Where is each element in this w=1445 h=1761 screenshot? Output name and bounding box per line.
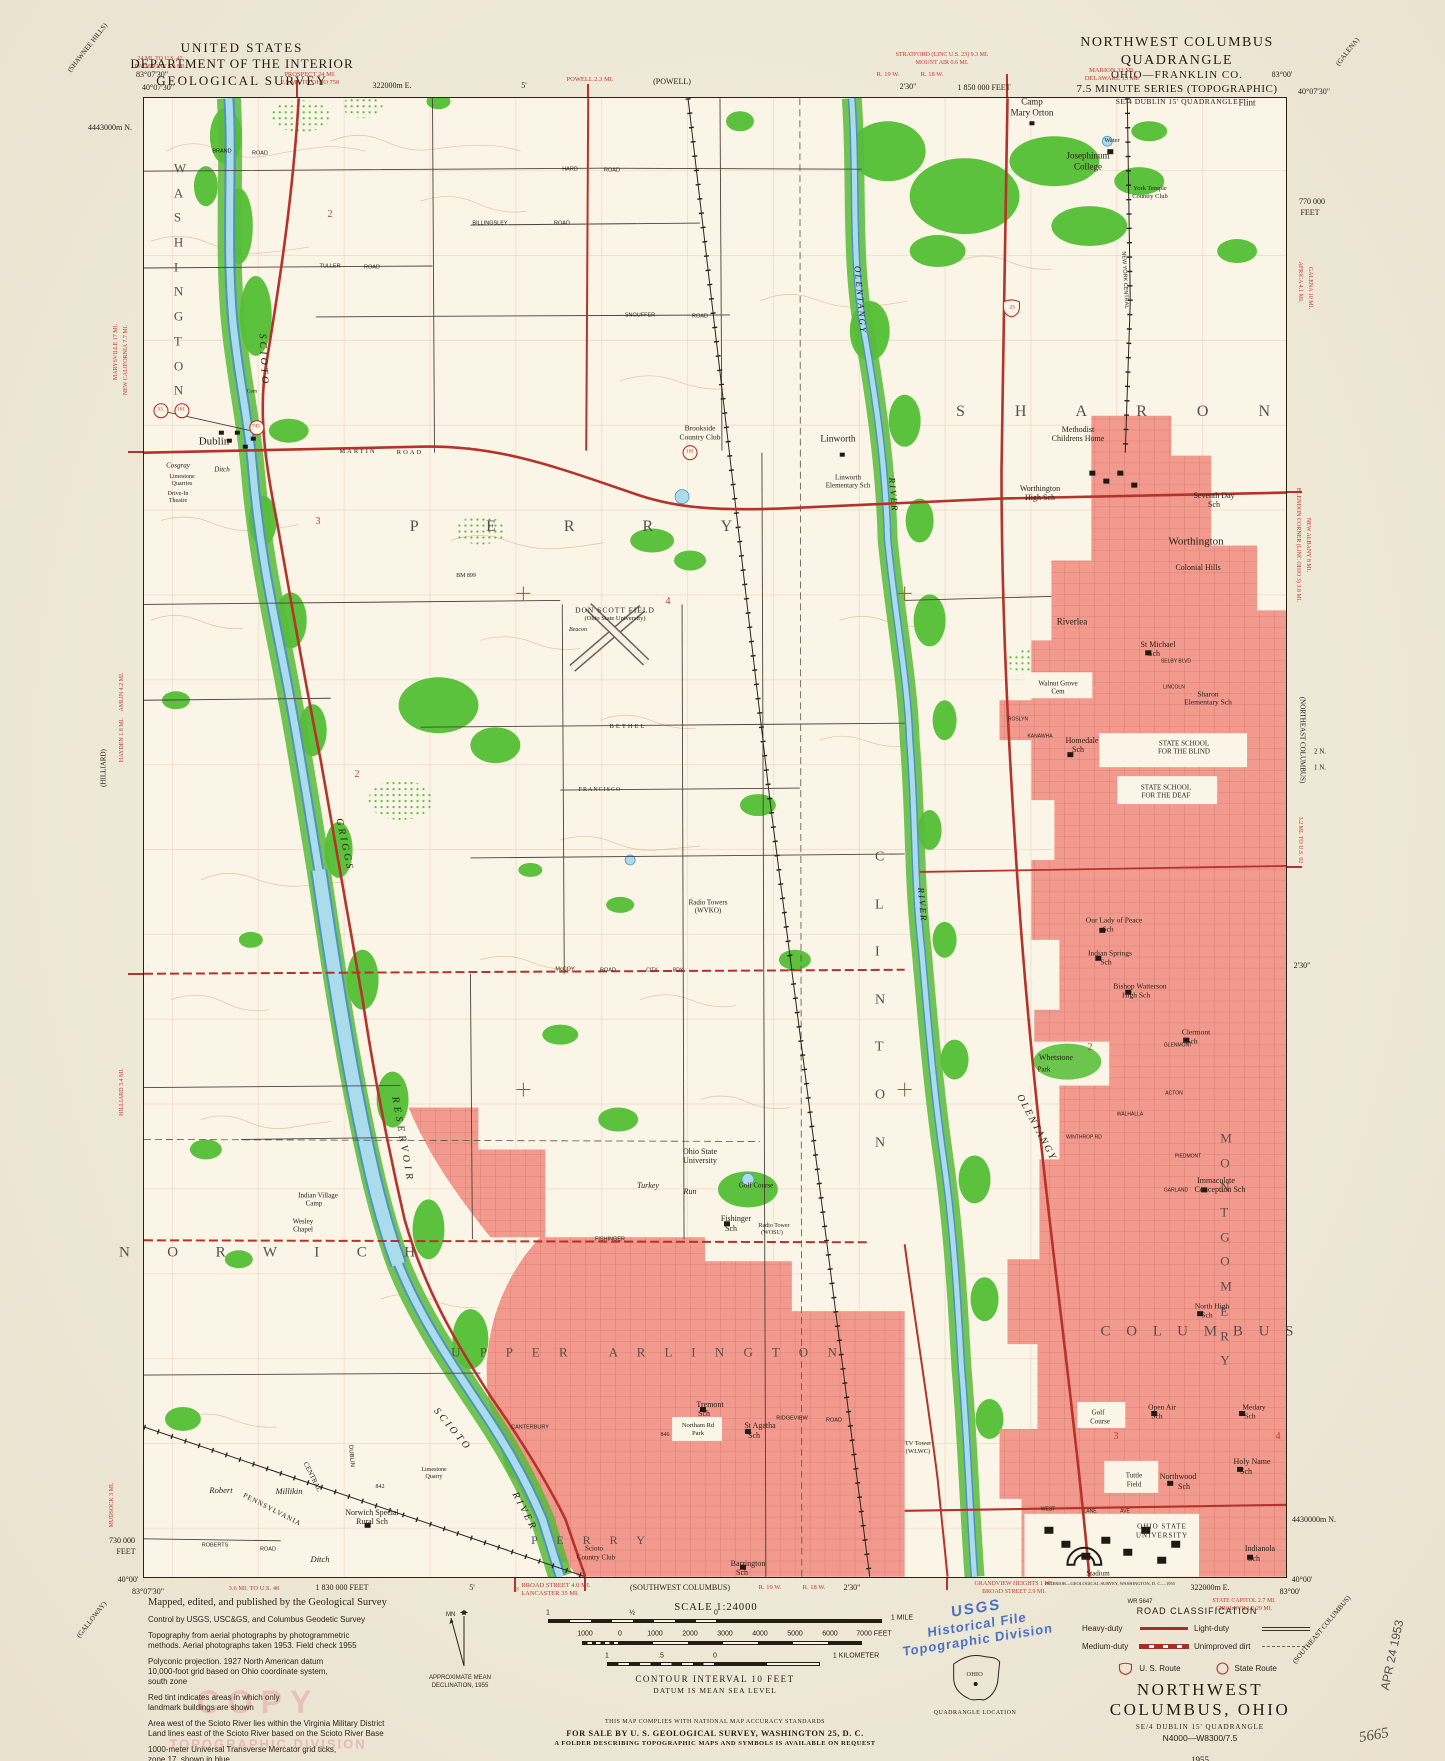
credit-line: Area west of the Scioto River lies withi… <box>148 1719 448 1739</box>
declination-caption: DECLINATION, 1955 <box>418 1683 502 1691</box>
sale-note: FOR SALE BY U. S. GEOLOGICAL SURVEY, WAS… <box>566 1728 863 1738</box>
accuracy-note: THIS MAP COMPLIES WITH NATIONAL MAP ACCU… <box>605 1719 825 1725</box>
ohio-label: OHIO <box>967 1671 984 1678</box>
map-canvas <box>144 98 1286 1577</box>
map-label: BROAD STREET 4.0 MI. <box>521 1583 590 1590</box>
map-sheet: UNITED STATES DEPARTMENT OF THE INTERIOR… <box>0 0 1445 1761</box>
map-label: MARYSVILLE 17 MI. <box>113 324 119 380</box>
agency-line: GEOLOGICAL SURVEY <box>130 73 353 89</box>
map-label: 730 000 <box>109 1537 135 1545</box>
sheet-code: N4000—W8300/7.5 <box>1078 1733 1323 1743</box>
map-label: MOUNT AIR 0.6 MI. <box>916 60 969 66</box>
map-label: 1 <box>546 1610 550 1617</box>
map-label: 4443000m N. <box>88 124 132 132</box>
quad-subtitle: SE/4 DUBLIN 15' QUADRANGLE <box>1043 97 1311 106</box>
map-label: ½ <box>629 1610 635 1617</box>
map-label: (GALENA) <box>1335 37 1361 68</box>
declination-caption: APPROXIMATE MEAN <box>418 1675 502 1683</box>
map-label: LANCASTER 35 MI. <box>521 1591 579 1598</box>
map-label: GALENA 10 MI. <box>1307 267 1313 309</box>
map-label: HILLIARD 3.4 MI. <box>119 1068 125 1116</box>
state-route-circle-icon <box>1215 1661 1230 1676</box>
contour-interval-note: CONTOUR INTERVAL 10 FEET <box>635 1674 794 1684</box>
sheet-subtitle: SE/4 DUBLIN 15' QUADRANGLE <box>1078 1723 1323 1731</box>
map-label: 5000 <box>787 1631 803 1638</box>
quad-series: 7.5 MINUTE SERIES (TOPOGRAPHIC) <box>1043 83 1311 97</box>
road-class-dirt-label: Unimproved dirt <box>1194 1642 1256 1651</box>
map-label: STRATFORD (LINC U.S. 23) 9.3 MI. <box>896 52 989 58</box>
scale-bar-feet <box>582 1641 862 1645</box>
road-extension <box>584 1578 586 1591</box>
map-label: .5 <box>658 1653 664 1660</box>
road-class-light-sample <box>1262 1627 1310 1631</box>
map-label: NEW CALIFORNIA 7.7 MI. <box>123 325 129 395</box>
map-label: STATE CAPITOL 2.7 MI. <box>1212 1598 1275 1604</box>
map-label: 1000 <box>577 1631 593 1638</box>
map-label: 1 830 000 FEET <box>315 1584 368 1592</box>
map-label: 2'30" <box>900 83 917 91</box>
declination-arrows: MN <box>418 1606 502 1670</box>
map-label: 1 KILOMETER <box>833 1653 879 1660</box>
map-label: R. 18 W. <box>921 72 944 79</box>
map-label: AFRICA 4.1 MI. <box>1297 261 1303 302</box>
sheet-title-block: NORTHWEST COLUMBUS, OHIO SE/4 DUBLIN 15'… <box>1078 1680 1323 1761</box>
quadrangle-location-caption: QUADRANGLE LOCATION <box>934 1710 1017 1716</box>
map-label: (SHAWNEE HILLS) <box>67 22 109 74</box>
road-extension <box>1287 866 1302 868</box>
sheet-year: 1955 <box>1078 1755 1323 1761</box>
map-label: 2000 <box>682 1631 698 1638</box>
agency-line: UNITED STATES <box>130 40 353 56</box>
map-label: 5' <box>521 82 526 90</box>
map-label: AMLIN 4.2 MI. <box>119 673 125 712</box>
map-label: 1 N. <box>1314 765 1326 772</box>
quad-state: OHIO—FRANKLIN CO. <box>1043 69 1311 83</box>
state-route-label: State Route <box>1235 1664 1277 1673</box>
map-label: 3.2 MI. TO U.S. 62 <box>1297 817 1303 864</box>
map-label: 322000m E. <box>372 82 411 90</box>
map-label: 83°00' <box>1280 1588 1301 1596</box>
map-label: (GALLOWAY) <box>76 1601 108 1640</box>
road-class-heavy-label: Heavy-duty <box>1082 1624 1134 1633</box>
map-label: 1000 <box>647 1631 663 1638</box>
map-label: (SOUTHWEST COLUMBUS) <box>630 1584 730 1592</box>
map-label: 0 <box>618 1631 622 1638</box>
svg-text:MN: MN <box>446 1612 455 1618</box>
declination-diagram: MN APPROXIMATE MEAN DECLINATION, 1955 <box>418 1606 502 1691</box>
road-extension <box>514 1578 516 1592</box>
map-label: 2'30" <box>1294 962 1311 970</box>
road-class-heavy-sample <box>1140 1627 1188 1630</box>
map-label: FEET <box>116 1548 135 1556</box>
road-extension <box>1287 491 1302 493</box>
ohio-outline: OHIO <box>946 1648 1004 1704</box>
map-label: 2'30" <box>844 1584 861 1592</box>
datum-note: DATUM IS MEAN SEA LEVEL <box>653 1686 776 1695</box>
road-class-light-label: Light-duty <box>1194 1624 1256 1633</box>
map-label: 3.6 MI. TO U.S. 40 <box>229 1586 280 1593</box>
folder-note: A FOLDER DESCRIBING TOPOGRAPHIC MAPS AND… <box>554 1740 875 1747</box>
map-label: 3000 <box>717 1631 733 1638</box>
map-label: FEET <box>1300 209 1319 217</box>
quadrangle-header: NORTHWEST COLUMBUS QUADRANGLE OHIO—FRANK… <box>1043 34 1311 106</box>
credits-block: Mapped, edited, and published by the Geo… <box>148 1596 448 1761</box>
map-label: BLENDON CORNER (LINC OHIO 3) 3.8 MI. <box>1295 488 1301 602</box>
map-label: R. 19 W. <box>877 72 900 79</box>
map-label: GRANDVIEW HEIGHTS 1 MI. <box>975 1581 1054 1587</box>
us-route-label: U. S. Route <box>1139 1664 1180 1673</box>
quad-title: NORTHWEST COLUMBUS QUADRANGLE <box>1043 34 1311 69</box>
map-label: WR 5647 <box>1127 1599 1152 1605</box>
map-label: R. 18 W. <box>803 1585 826 1592</box>
map-label: 4430000m N. <box>1292 1516 1336 1524</box>
road-class-dirt-sample <box>1262 1646 1310 1647</box>
scale-bar-km <box>607 1662 820 1666</box>
map-label: HAYDEN 1.8 MI. <box>119 718 125 762</box>
road-classification-title: ROAD CLASSIFICATION <box>1082 1606 1312 1616</box>
map-label: 5665 <box>1358 1726 1390 1746</box>
map-label: MUDSOCK 3 MI. <box>109 1483 115 1528</box>
sheet-title: NORTHWEST COLUMBUS, OHIO <box>1078 1680 1323 1720</box>
map-label: (POWELL) <box>653 78 691 86</box>
agency-line: DEPARTMENT OF THE INTERIOR <box>130 56 353 72</box>
road-extension <box>946 1578 948 1590</box>
map-label: (HILLIARD) <box>101 749 108 787</box>
map-label: R. 19 W. <box>759 1585 782 1592</box>
us-route-shield-icon <box>1117 1661 1134 1676</box>
credit-line: Mapped, edited, and published by the Geo… <box>148 1596 448 1609</box>
credit-line: Topography from aerial photographs by ph… <box>148 1631 448 1651</box>
map-label: 1 <box>605 1653 609 1660</box>
map-label: 770 000 <box>1299 198 1325 206</box>
map-label: 83°07'30" <box>132 1588 164 1596</box>
credit-line: Control by USGS, USC&GS, and Columbus Ge… <box>148 1615 448 1625</box>
map-label: 1 850 000 FEET <box>957 84 1010 92</box>
map-label: 2 N. <box>1314 749 1326 756</box>
map-label: (NORTHEAST COLUMBUS) <box>1299 697 1306 783</box>
map-label: 322000m E. <box>1190 1584 1229 1592</box>
scale-bar-miles <box>548 1619 882 1623</box>
map-label: INTERIOR—GEOLOGICAL SURVEY, WASHINGTON, … <box>1045 1582 1175 1587</box>
map-label: 5' <box>469 1584 474 1592</box>
map-label: NEW ALBANY 8 MI. <box>1305 518 1311 572</box>
road-class-medium-label: Medium-duty <box>1082 1642 1134 1651</box>
quadrangle-location: OHIO QUADRANGLE LOCATION <box>934 1648 1017 1716</box>
scale-label: SCALE 1:24000 <box>674 1602 757 1613</box>
road-extension <box>128 451 143 453</box>
agency-header: UNITED STATES DEPARTMENT OF THE INTERIOR… <box>130 40 353 89</box>
map-label: 40°00' <box>1292 1576 1313 1584</box>
map-label: POWELL 2.3 MI. <box>566 77 613 84</box>
credit-line: Polyconic projection. 1927 North America… <box>148 1657 448 1687</box>
map-label: 40°00' <box>118 1576 139 1584</box>
credit-line: 1000-meter Universal Transverse Mercator… <box>148 1745 448 1761</box>
map-label: APR 24 1953 <box>1379 1619 1406 1691</box>
road-extension <box>1006 74 1008 97</box>
map-label: 4000 <box>752 1631 768 1638</box>
road-extension <box>587 84 589 97</box>
credit-line: Red tint indicates areas in which only l… <box>148 1693 448 1713</box>
map-label: 6000 <box>822 1631 838 1638</box>
road-extension <box>128 973 143 975</box>
road-class-medium-sample <box>1140 1645 1188 1648</box>
map-frame <box>143 97 1287 1578</box>
map-label: 7000 FEET <box>856 1631 891 1638</box>
map-label: 0 <box>713 1653 717 1660</box>
road-classification: ROAD CLASSIFICATION Heavy-duty Light-dut… <box>1082 1606 1312 1676</box>
